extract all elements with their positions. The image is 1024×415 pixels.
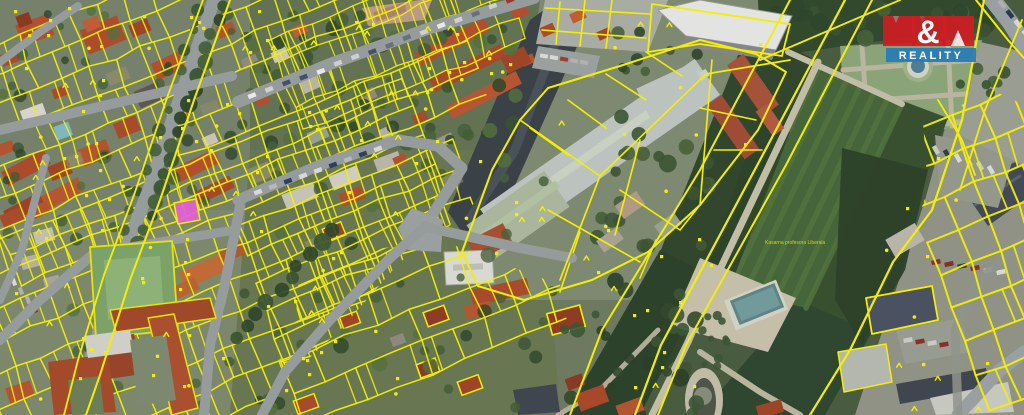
svg-text:&: & <box>916 14 939 50</box>
svg-text:REALITY: REALITY <box>899 50 964 62</box>
svg-text:Kasarna profesora Liberala: Kasarna profesora Liberala <box>765 240 826 246</box>
